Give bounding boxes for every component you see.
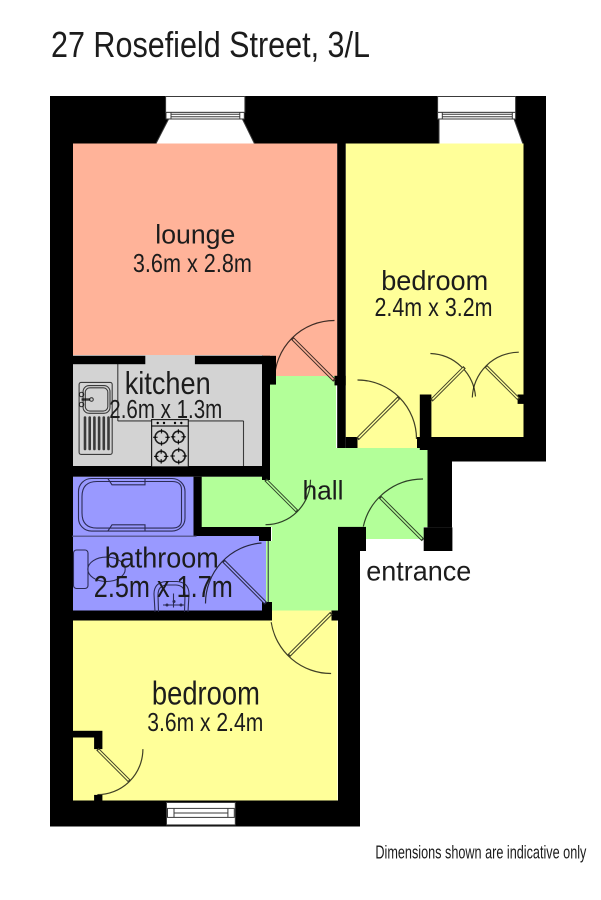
svg-text:2.4m x 3.2m: 2.4m x 3.2m bbox=[375, 292, 493, 322]
svg-text:bedroom: bedroom bbox=[152, 675, 260, 712]
svg-text:3.6m x 2.8m: 3.6m x 2.8m bbox=[133, 248, 252, 278]
svg-text:hall: hall bbox=[303, 476, 344, 506]
svg-text:2.6m x 1.3m: 2.6m x 1.3m bbox=[109, 396, 222, 424]
svg-text:Dimensions shown are indicativ: Dimensions shown are indicative only bbox=[375, 843, 586, 863]
svg-text:27 Rosefield Street, 3/L: 27 Rosefield Street, 3/L bbox=[51, 24, 370, 65]
svg-text:entrance: entrance bbox=[366, 555, 471, 586]
svg-text:3.6m x 2.4m: 3.6m x 2.4m bbox=[147, 707, 263, 737]
svg-text:lounge: lounge bbox=[155, 219, 235, 249]
svg-text:2.5m x 1.7m: 2.5m x 1.7m bbox=[94, 569, 233, 604]
